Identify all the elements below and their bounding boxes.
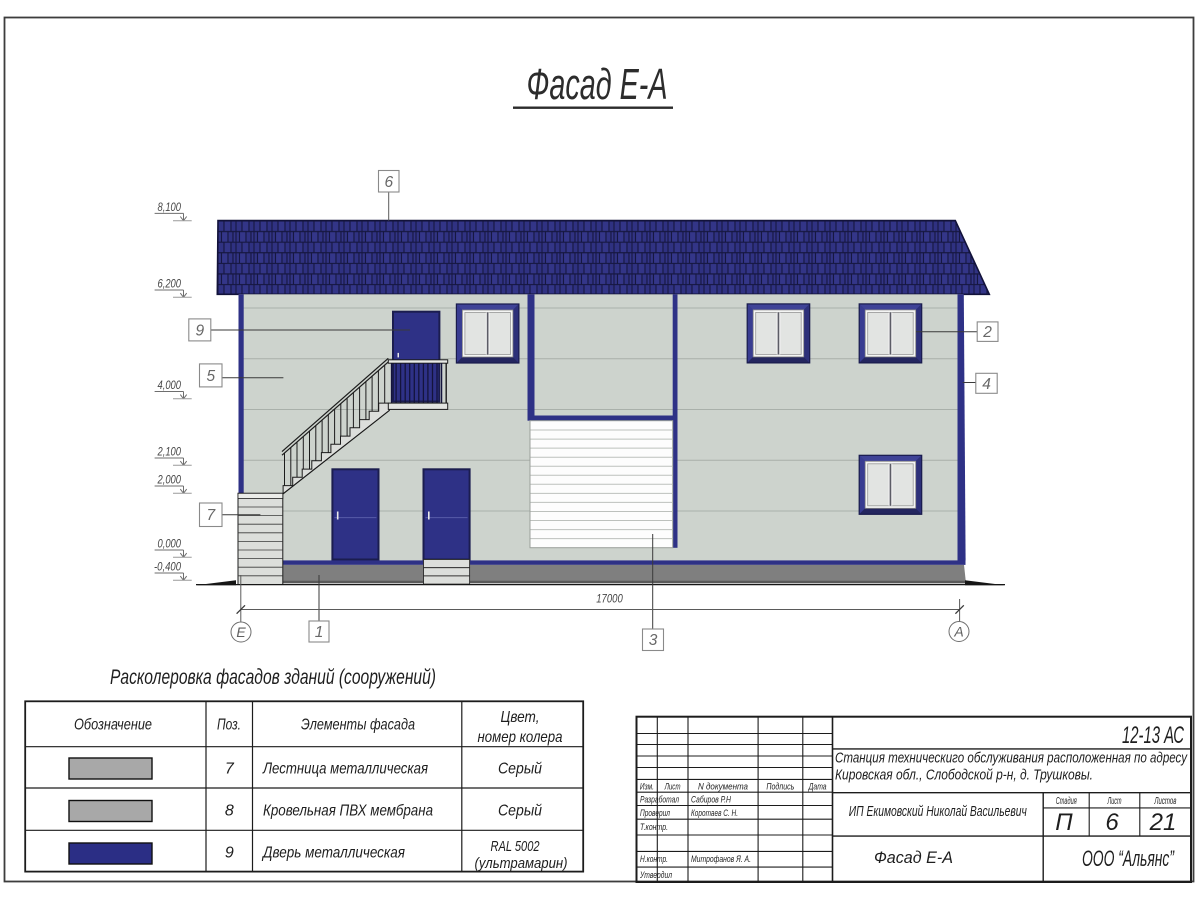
svg-text:17000: 17000 — [596, 592, 623, 606]
svg-text:ООО “Альянс”: ООО “Альянс” — [1082, 846, 1175, 871]
svg-text:Е: Е — [236, 624, 246, 640]
svg-text:Цвет,: Цвет, — [501, 709, 540, 726]
svg-text:Стадия: Стадия — [1056, 795, 1077, 807]
svg-text:(ультрамарин): (ультрамарин) — [475, 855, 568, 872]
svg-text:1: 1 — [315, 624, 324, 641]
svg-text:6,200: 6,200 — [158, 279, 182, 291]
svg-text:Коротаев С. Н.: Коротаев С. Н. — [691, 808, 738, 819]
svg-text:2,000: 2,000 — [157, 475, 182, 487]
svg-text:Станция техническиго обслужива: Станция техническиго обслуживания распол… — [835, 751, 1188, 767]
svg-text:6: 6 — [384, 174, 393, 191]
svg-text:0,000: 0,000 — [158, 539, 182, 551]
svg-text:А: А — [953, 624, 963, 640]
svg-text:Обозначение: Обозначение — [74, 717, 152, 734]
svg-text:2: 2 — [982, 324, 992, 341]
svg-text:Подпись: Подпись — [766, 782, 794, 793]
svg-text:Лист: Лист — [664, 782, 681, 793]
svg-text:Т.контр.: Т.контр. — [640, 822, 668, 833]
svg-text:3: 3 — [649, 632, 658, 649]
svg-text:Кировская обл., Слободской р-н: Кировская обл., Слободской р-н, д. Трушк… — [835, 768, 1093, 784]
svg-text:Серый: Серый — [498, 761, 542, 778]
svg-text:Серый: Серый — [498, 803, 542, 820]
svg-text:П: П — [1055, 809, 1073, 836]
svg-text:9: 9 — [225, 845, 234, 862]
svg-text:Поз.: Поз. — [217, 717, 241, 734]
svg-text:Утвердил: Утвердил — [639, 870, 672, 881]
svg-text:Расколеровка фасадов зданий (с: Расколеровка фасадов зданий (сооружений) — [110, 666, 436, 689]
svg-text:Дверь металлическая: Дверь металлическая — [261, 845, 405, 862]
svg-text:Разработал: Разработал — [640, 795, 679, 806]
svg-text:6: 6 — [1105, 809, 1119, 836]
svg-text:8: 8 — [225, 803, 234, 820]
svg-text:Фасад Е-А: Фасад Е-А — [527, 60, 668, 109]
svg-text:12-13 АС: 12-13 АС — [1122, 722, 1184, 749]
svg-text:Сабиров Р.Н: Сабиров Р.Н — [691, 795, 731, 806]
svg-text:Кровельная ПВХ мембрана: Кровельная ПВХ мембрана — [263, 803, 433, 820]
svg-text:2,100: 2,100 — [157, 447, 182, 459]
svg-text:8,100: 8,100 — [158, 202, 182, 214]
svg-text:Изм.: Изм. — [640, 782, 654, 793]
svg-text:Лестница металлическая: Лестница металлическая — [262, 761, 428, 778]
svg-text:RAL 5002: RAL 5002 — [491, 838, 540, 855]
svg-text:Листов: Листов — [1154, 795, 1177, 807]
svg-text:номер колера: номер колера — [478, 729, 563, 746]
svg-text:Проверил: Проверил — [640, 808, 670, 819]
svg-text:Лист: Лист — [1107, 795, 1122, 807]
svg-text:Митрофанов Я. А.: Митрофанов Я. А. — [691, 854, 751, 865]
svg-text:5: 5 — [206, 368, 215, 385]
svg-text:21: 21 — [1149, 809, 1177, 836]
svg-text:Дата: Дата — [808, 782, 827, 793]
svg-text:4,000: 4,000 — [158, 380, 182, 392]
svg-text:Н.контр.: Н.контр. — [640, 854, 668, 865]
svg-text:7: 7 — [225, 761, 235, 778]
svg-text:ИП Екимовский Николай Васильев: ИП Екимовский Николай Васильевич — [849, 803, 1027, 820]
svg-text:4: 4 — [982, 376, 991, 393]
svg-text:N документа: N документа — [698, 782, 748, 793]
svg-text:Элементы фасада: Элементы фасада — [301, 717, 415, 734]
svg-text:9: 9 — [195, 322, 204, 339]
svg-text:Фасад Е-А: Фасад Е-А — [874, 848, 953, 867]
svg-text:7: 7 — [206, 507, 216, 524]
svg-text:-0,400: -0,400 — [154, 562, 181, 574]
